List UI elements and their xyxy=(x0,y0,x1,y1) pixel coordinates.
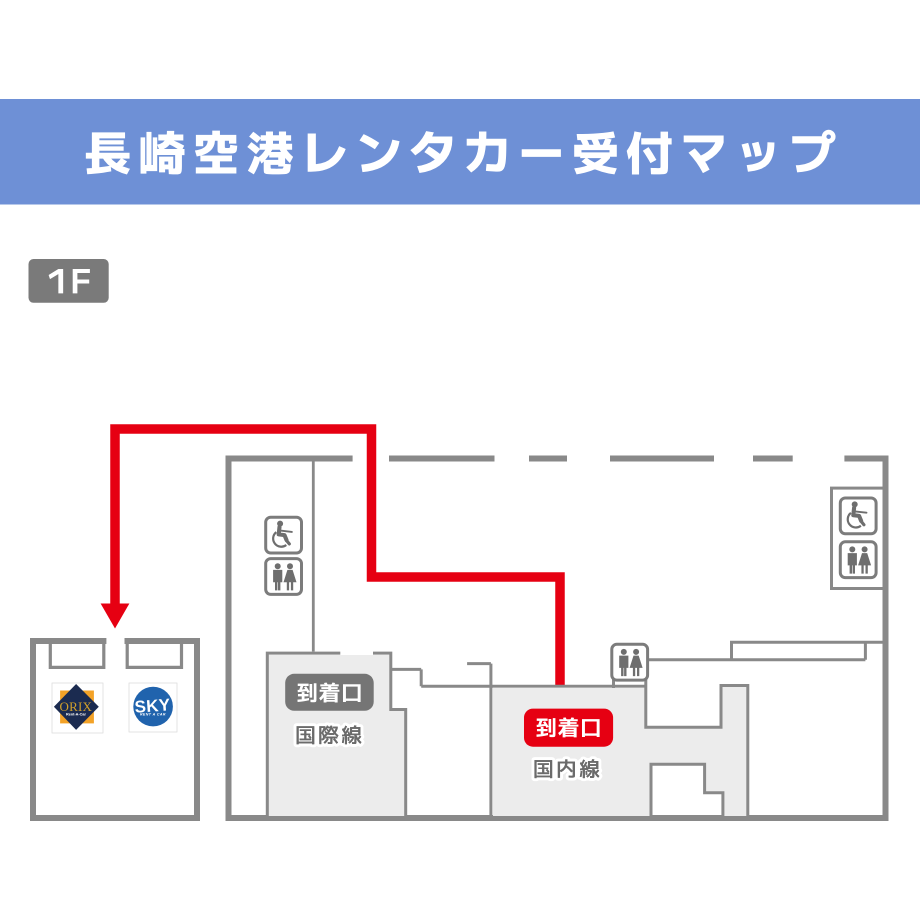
svg-text:Rent-A-Car: Rent-A-Car xyxy=(66,713,87,717)
svg-text:RENT A CAR: RENT A CAR xyxy=(140,713,166,717)
